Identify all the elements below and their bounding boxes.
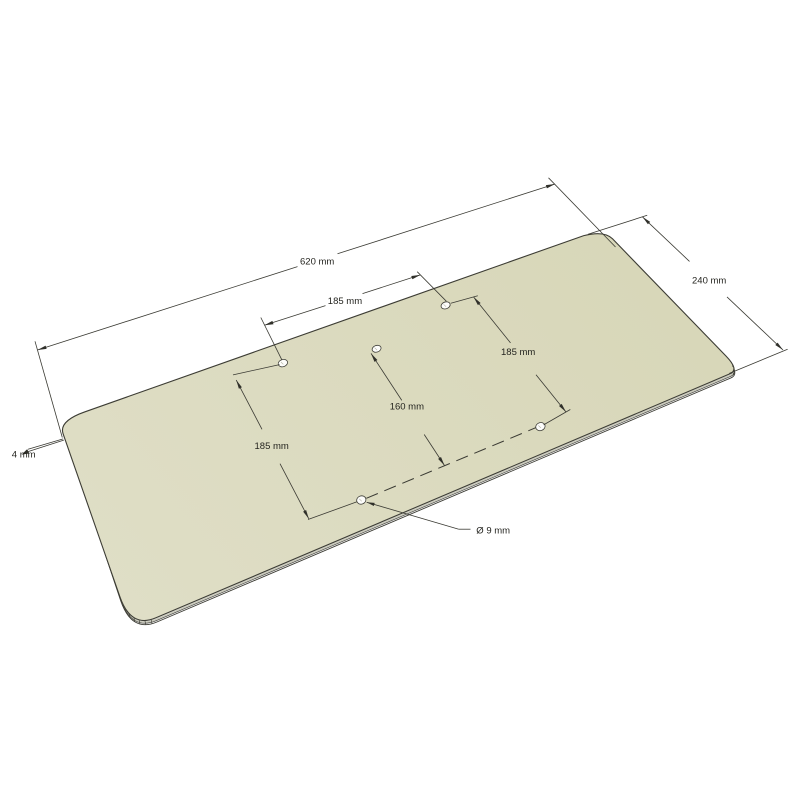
- svg-text:185 mm: 185 mm: [501, 347, 535, 358]
- svg-text:Ø 9 mm: Ø 9 mm: [476, 525, 510, 536]
- svg-text:620 mm: 620 mm: [300, 257, 334, 268]
- svg-text:240 mm: 240 mm: [692, 275, 726, 286]
- svg-text:4 mm: 4 mm: [12, 449, 36, 460]
- svg-text:185 mm: 185 mm: [255, 441, 289, 452]
- svg-text:185 mm: 185 mm: [328, 296, 362, 307]
- svg-text:160 mm: 160 mm: [390, 402, 424, 413]
